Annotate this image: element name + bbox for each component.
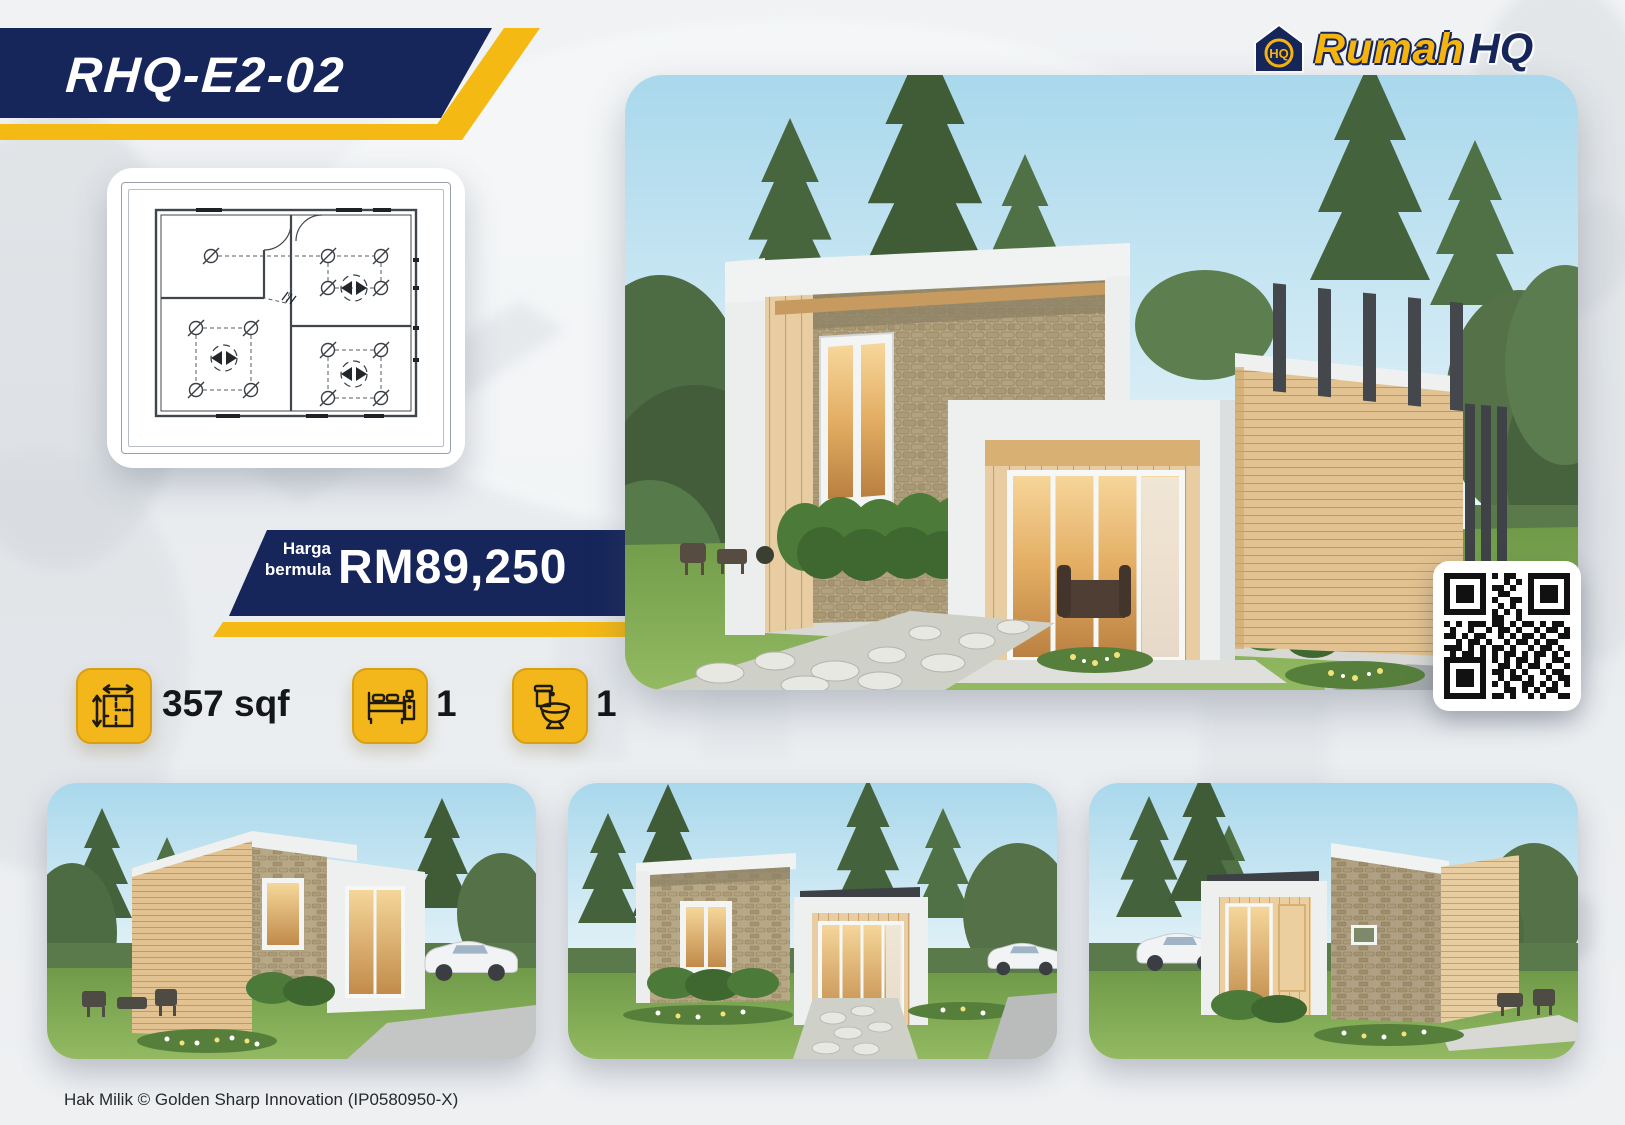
qr-card: [1433, 561, 1581, 711]
floor-plan-drawing: [136, 193, 436, 443]
price-label-line2: bermula: [243, 559, 331, 580]
spec-bathrooms-value: 1: [596, 668, 617, 740]
spec-bedrooms-tile: [352, 668, 428, 744]
bed-icon: [364, 685, 416, 727]
price-label-line1: Harga: [243, 538, 331, 559]
spec-area-value: 357 sqf: [162, 668, 290, 740]
thumbnail-front-right-view: [1089, 783, 1578, 1059]
thumbnail-front-view: [568, 783, 1057, 1059]
area-icon: [90, 682, 138, 730]
brand-word-rumah: Rumah: [1314, 25, 1465, 74]
house-logo-icon: HQ: [1252, 23, 1306, 75]
brand-word-hq: HQ: [1469, 25, 1534, 74]
thumbnail-1-scene: [47, 783, 536, 1059]
price-value: RM89,250: [338, 528, 638, 608]
spec-bedrooms-value: 1: [436, 668, 457, 740]
model-code-text: RHQ-E2-02: [63, 36, 448, 114]
thumbnail-3-scene: [1089, 783, 1578, 1059]
price-label: Harga bermula: [243, 538, 331, 580]
title-banner-underline: [0, 124, 470, 140]
price-banner-underline: [213, 622, 650, 637]
logo-monogram: HQ: [1269, 46, 1289, 61]
qr-code: [1444, 573, 1570, 699]
footer-copyright: Hak Milik © Golden Sharp Innovation (IP0…: [64, 1090, 458, 1110]
spec-area-tile: [76, 668, 152, 744]
floor-plan-card: [107, 168, 465, 468]
thumbnail-2-scene: [568, 783, 1057, 1059]
spec-bathrooms-tile: [512, 668, 588, 744]
thumbnail-rear-left-view: [47, 783, 536, 1059]
toilet-icon: [527, 682, 573, 730]
brand-logo: HQ Rumah HQ: [1252, 20, 1533, 78]
property-flyer: RHQ-E2-02 HQ Rumah HQ: [0, 0, 1625, 1125]
